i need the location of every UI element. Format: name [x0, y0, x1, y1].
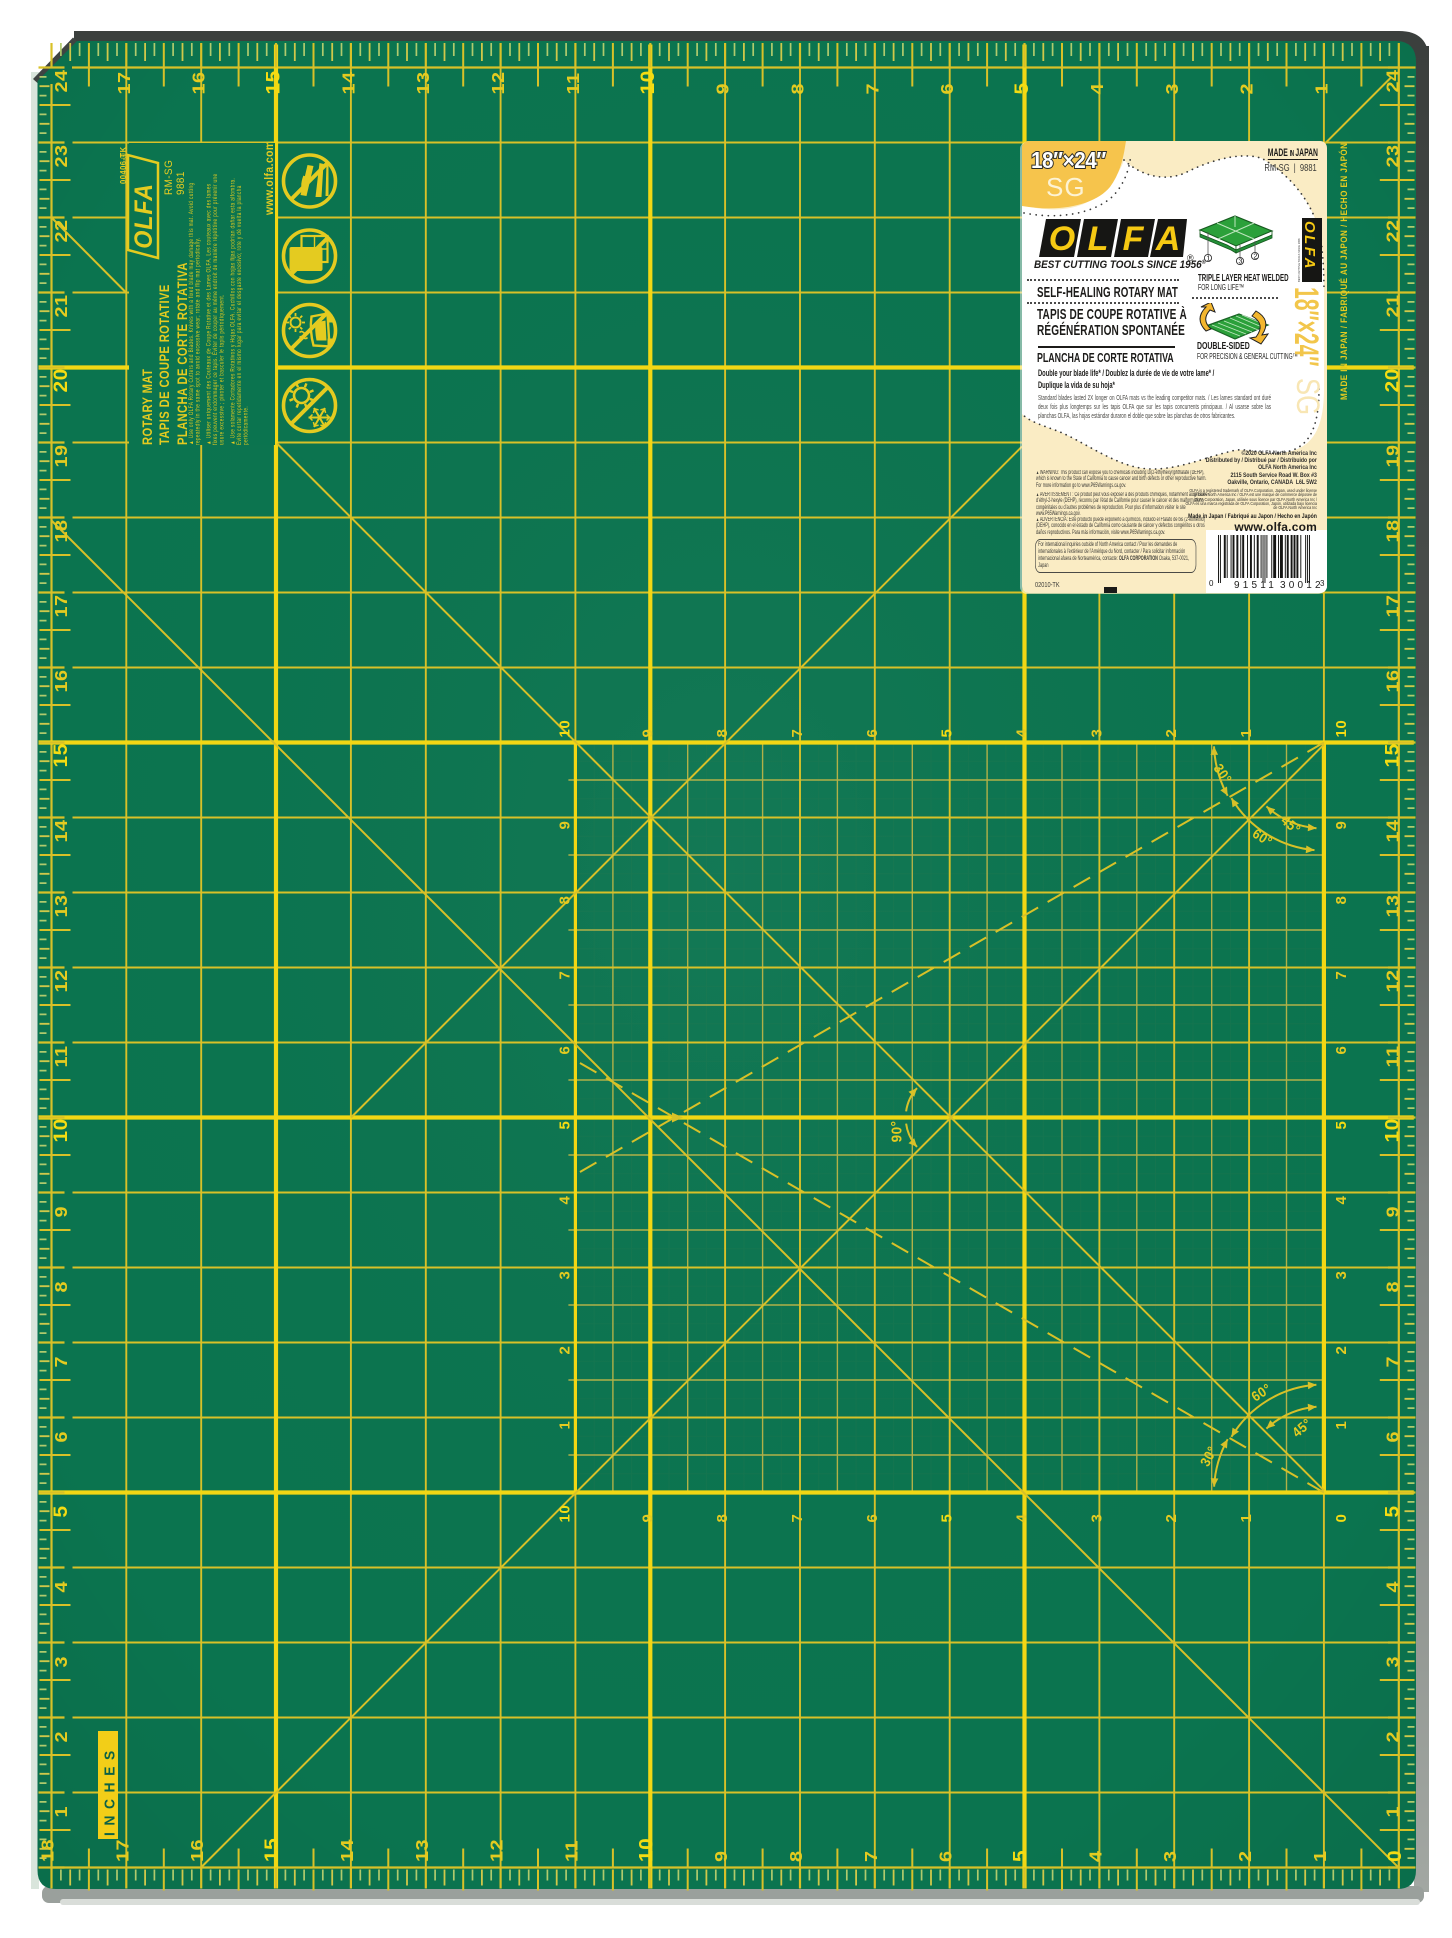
svg-text:13: 13 [1383, 894, 1403, 917]
svg-text:2: 2 [1163, 1514, 1180, 1523]
svg-text:13: 13 [413, 1839, 433, 1862]
svg-text:4: 4 [1333, 1196, 1350, 1205]
svg-text:16: 16 [1383, 669, 1403, 692]
svg-text:5: 5 [1012, 82, 1033, 94]
svg-text:18: 18 [38, 1839, 58, 1862]
svg-text:7: 7 [789, 1514, 806, 1523]
svg-text:www.olfa.com: www.olfa.com [264, 140, 277, 216]
svg-text:10: 10 [1382, 1118, 1403, 1142]
svg-text:3: 3 [556, 1271, 573, 1280]
svg-text:1: 1 [1333, 1421, 1350, 1430]
svg-text:4: 4 [1014, 1514, 1031, 1523]
svg-text:O: O [1049, 220, 1075, 258]
svg-text:6: 6 [938, 83, 958, 95]
svg-text:15: 15 [263, 70, 284, 94]
svg-text:18: 18 [1383, 519, 1403, 542]
svg-text:0: 0 [1333, 1514, 1350, 1523]
svg-text:INCHES: INCHES [101, 1744, 117, 1836]
svg-text:22: 22 [1383, 219, 1403, 242]
svg-text:9: 9 [1333, 821, 1350, 830]
svg-text:5: 5 [1010, 1850, 1031, 1862]
svg-text:12: 12 [52, 969, 72, 992]
svg-text:10: 10 [636, 1838, 657, 1862]
svg-text:6: 6 [1383, 1431, 1403, 1443]
svg-text:1: 1 [52, 1806, 72, 1818]
svg-text:MADE IN JAPAN / FABRIQUÉ AU J: MADE IN JAPAN / FABRIQUÉ AU JAPON / HECH… [1338, 143, 1350, 400]
svg-text:24: 24 [52, 69, 72, 92]
svg-text:23: 23 [52, 144, 72, 167]
svg-text:13: 13 [52, 894, 72, 917]
svg-text:0: 0 [1385, 1850, 1406, 1862]
svg-text:11: 11 [52, 1045, 72, 1067]
svg-text:12: 12 [1383, 969, 1403, 992]
svg-text:usure excessive ; pivoter et b: usure excessive ; pivoter et basculer le… [219, 294, 226, 445]
svg-text:7: 7 [52, 1356, 72, 1368]
svg-text:8: 8 [714, 729, 731, 738]
svg-text:1: 1 [1312, 83, 1332, 95]
svg-text:1: 1 [1383, 1806, 1403, 1818]
svg-text:7: 7 [789, 729, 806, 738]
svg-text:2: 2 [556, 1346, 573, 1355]
svg-text:3: 3 [1088, 729, 1105, 738]
svg-text:22: 22 [52, 219, 72, 242]
svg-text:2: 2 [1383, 1731, 1403, 1743]
svg-text:4: 4 [1088, 83, 1108, 95]
svg-text:5: 5 [939, 729, 956, 738]
svg-text:6: 6 [936, 1850, 956, 1862]
svg-text:8: 8 [1333, 896, 1350, 905]
svg-text:11: 11 [1383, 1045, 1403, 1067]
svg-text:13: 13 [414, 71, 434, 94]
svg-text:9: 9 [712, 1850, 732, 1862]
svg-text:11: 11 [562, 1840, 582, 1862]
svg-text:1: 1 [556, 1421, 573, 1430]
svg-text:12: 12 [487, 1839, 507, 1862]
svg-text:16: 16 [52, 669, 72, 692]
svg-text:90°: 90° [889, 1121, 906, 1143]
svg-text:6: 6 [556, 1046, 573, 1055]
svg-text:21: 21 [52, 294, 72, 317]
svg-text:3: 3 [52, 1656, 72, 1668]
svg-text:3: 3 [1088, 1514, 1105, 1523]
svg-text:11: 11 [564, 72, 584, 94]
svg-text:10: 10 [51, 1118, 72, 1142]
svg-text:16: 16 [189, 71, 209, 94]
svg-text:4: 4 [1383, 1581, 1403, 1593]
svg-text:9: 9 [639, 729, 656, 738]
svg-text:1: 1 [1311, 1850, 1331, 1862]
svg-text:7: 7 [1333, 971, 1350, 980]
svg-text:2: 2 [1236, 1850, 1256, 1862]
svg-text:4: 4 [556, 1196, 573, 1205]
svg-text:17: 17 [115, 71, 135, 94]
svg-text:10: 10 [556, 1505, 573, 1523]
svg-text:1: 1 [1206, 254, 1210, 263]
svg-text:16: 16 [188, 1839, 208, 1862]
svg-text:5: 5 [939, 1514, 956, 1523]
svg-text:7: 7 [862, 1850, 882, 1862]
svg-text:17: 17 [113, 1839, 133, 1862]
svg-text:2: 2 [52, 1731, 72, 1743]
svg-text:18: 18 [52, 519, 72, 542]
svg-text:9: 9 [1383, 1206, 1403, 1218]
svg-text:3: 3 [1333, 1271, 1350, 1280]
svg-text:6: 6 [1333, 1046, 1350, 1055]
svg-text:10: 10 [1333, 720, 1350, 738]
svg-text:19: 19 [1383, 444, 1403, 467]
svg-text:6: 6 [864, 729, 881, 738]
svg-text:15: 15 [262, 1838, 283, 1862]
svg-text:8: 8 [52, 1281, 72, 1293]
svg-text:00406-TK: 00406-TK [119, 146, 128, 184]
svg-text:2: 2 [1237, 83, 1257, 95]
svg-text:TAPIS DE COUPE ROTATIVE: TAPIS DE COUPE ROTATIVE [157, 284, 172, 445]
svg-text:8: 8 [788, 83, 808, 95]
svg-text:RM-SG: RM-SG [164, 160, 176, 195]
svg-text:L: L [1088, 220, 1109, 258]
svg-text:20: 20 [51, 368, 72, 392]
svg-text:2: 2 [1333, 1346, 1350, 1355]
svg-text:23: 23 [1383, 144, 1403, 167]
svg-text:5: 5 [51, 1505, 72, 1517]
svg-text:3: 3 [1163, 83, 1183, 95]
svg-text:14: 14 [52, 819, 72, 842]
svg-text:9: 9 [52, 1206, 72, 1218]
svg-text:15: 15 [1382, 743, 1403, 767]
svg-text:7: 7 [863, 83, 883, 95]
svg-text:®: ® [119, 153, 128, 159]
svg-text:12: 12 [489, 71, 509, 94]
svg-text:5: 5 [1382, 1505, 1403, 1517]
svg-text:periódicamente.: periódicamente. [243, 406, 250, 445]
svg-text:21: 21 [1383, 294, 1403, 317]
svg-text:F: F [1123, 220, 1145, 258]
svg-text:10: 10 [638, 70, 659, 94]
svg-text:4: 4 [1014, 729, 1031, 738]
svg-text:19: 19 [52, 444, 72, 467]
svg-text:4: 4 [1086, 1850, 1106, 1862]
svg-text:8: 8 [787, 1850, 807, 1862]
svg-text:9: 9 [556, 821, 573, 830]
svg-text:5: 5 [1333, 1121, 1350, 1130]
svg-text:10: 10 [556, 720, 573, 738]
svg-text:24: 24 [1383, 69, 1403, 92]
svg-text:15: 15 [51, 743, 72, 767]
svg-text:8: 8 [1383, 1281, 1403, 1293]
svg-text:14: 14 [338, 1839, 358, 1862]
svg-text:repeatedly in the same spot to: repeatedly in the same spot to avoid exc… [195, 237, 202, 445]
svg-text:8: 8 [714, 1514, 731, 1523]
svg-text:4: 4 [52, 1581, 72, 1593]
svg-text:3: 3 [1161, 1850, 1181, 1862]
svg-text:9881: 9881 [176, 171, 188, 195]
svg-text:20: 20 [1382, 368, 1403, 392]
svg-text:14: 14 [1383, 819, 1403, 842]
svg-text:6: 6 [52, 1431, 72, 1443]
svg-text:6: 6 [864, 1514, 881, 1523]
svg-text:17: 17 [1383, 594, 1403, 617]
svg-text:1: 1 [1238, 1514, 1255, 1523]
svg-text:ROTARY MAT: ROTARY MAT [140, 369, 155, 445]
svg-text:9: 9 [713, 83, 733, 95]
svg-text:7: 7 [556, 971, 573, 980]
svg-text:BEST CUTTING TOOLS SINCE 1956: BEST CUTTING TOOLS SINCE 1956 [1297, 238, 1301, 282]
svg-text:2: 2 [1253, 252, 1257, 261]
svg-text:2: 2 [1163, 729, 1180, 738]
svg-text:OLFA: OLFA [1301, 221, 1318, 271]
svg-text:14: 14 [339, 71, 359, 94]
svg-text:17: 17 [52, 594, 72, 617]
svg-text:9: 9 [639, 1514, 656, 1523]
svg-text:3: 3 [1383, 1656, 1403, 1668]
svg-text:5: 5 [556, 1121, 573, 1130]
svg-text:A: A [1155, 220, 1181, 258]
svg-text:8: 8 [556, 896, 573, 905]
svg-text:1: 1 [1238, 729, 1255, 738]
svg-text:7: 7 [1383, 1356, 1403, 1368]
svg-text:3: 3 [1238, 257, 1242, 265]
svg-text:OLFA: OLFA [130, 183, 158, 249]
